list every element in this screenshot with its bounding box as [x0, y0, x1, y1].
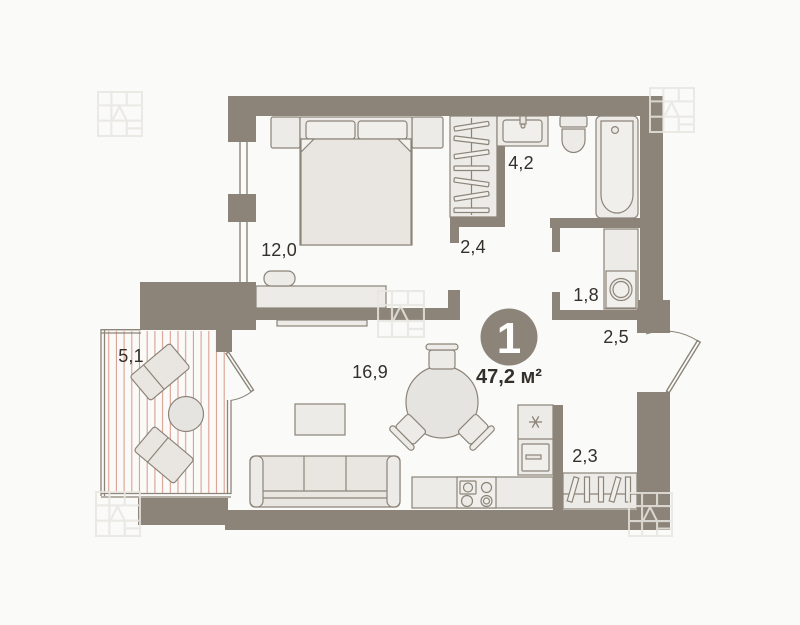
pillow — [306, 121, 355, 139]
stove — [457, 477, 496, 508]
wall-bedroom-divider-stub — [448, 290, 460, 310]
room-label-wardrobe: 2,4 — [460, 237, 486, 257]
floor-plan-svg: 12,0 2,4 4,2 1,8 2,5 16,9 5,1 2,3 1 47,2… — [0, 0, 800, 625]
wall-west-block — [140, 282, 256, 330]
balcony-table — [169, 397, 204, 432]
wall-west-pier-2 — [228, 194, 256, 222]
wall-laundry-left-upper — [552, 228, 560, 252]
wall-balcony-bottom — [138, 498, 228, 525]
badge-number: 1 — [497, 314, 521, 363]
wall-right-door-jamb — [637, 300, 670, 333]
room-label-hallway: 2,5 — [603, 327, 629, 347]
wall-below-closet — [450, 217, 503, 227]
wall-bedroom-divider — [254, 308, 460, 320]
pillow — [358, 121, 407, 139]
wall-bottom — [225, 510, 670, 530]
wardrobe-unit — [450, 116, 497, 217]
dining-chair — [426, 344, 458, 369]
wall-balcony-door-stub — [216, 330, 232, 352]
bed — [300, 117, 412, 245]
total-area-label: 47,2 м² — [476, 366, 542, 388]
drain — [612, 127, 619, 134]
room-label-closet: 2,3 — [572, 446, 598, 466]
room-label-laundry: 1,8 — [573, 285, 599, 305]
wall-laundry-bottom — [552, 310, 640, 320]
sofa-armrest — [250, 456, 263, 507]
room-label-living-room: 16,9 — [352, 362, 388, 382]
laundry-fixtures — [604, 229, 638, 309]
sink — [497, 116, 548, 146]
room-label-bedroom: 12,0 — [261, 240, 297, 260]
fridge-handle — [526, 455, 541, 459]
closet-unit — [563, 473, 637, 509]
room-label-bathroom: 4,2 — [508, 153, 534, 173]
wall-bath-bottom — [550, 218, 640, 228]
sofa — [250, 456, 400, 507]
nightstand-left — [271, 117, 300, 148]
fridge — [518, 405, 553, 475]
washing-machine — [606, 271, 636, 308]
wall-top — [228, 96, 663, 116]
dresser — [256, 286, 386, 308]
bathtub — [596, 116, 638, 218]
room-label-balcony: 5,1 — [118, 346, 144, 366]
nightstand-right — [412, 117, 443, 148]
wall-kitchen-divider — [553, 405, 563, 510]
pouf — [264, 271, 295, 286]
sofa-armrest — [387, 456, 400, 507]
toilet — [560, 116, 587, 153]
tv — [277, 320, 367, 326]
wall-below-closet-stub — [450, 227, 459, 243]
coffee-table — [295, 404, 345, 435]
blanket — [301, 139, 411, 245]
wall-west-pier-1 — [228, 116, 256, 142]
floor-plan-page: 12,0 2,4 4,2 1,8 2,5 16,9 5,1 2,3 1 47,2… — [0, 0, 800, 625]
